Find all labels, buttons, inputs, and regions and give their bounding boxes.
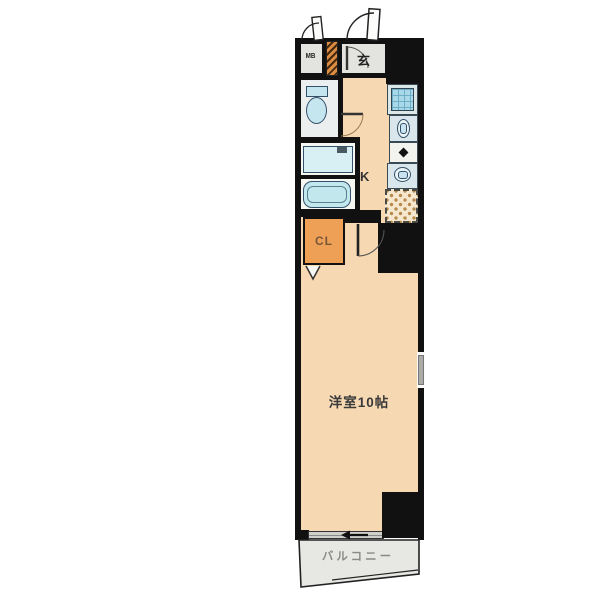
wall-block-bottom-right <box>382 492 424 538</box>
main-room-label: 洋室10帖 <box>299 391 419 411</box>
entrance-label: 玄 <box>357 50 370 69</box>
meter-box-label: MB <box>300 53 321 60</box>
bathtub-inner-line <box>307 186 347 204</box>
wall-left <box>295 38 301 540</box>
closet: CL <box>303 217 345 265</box>
sink-bowl-icon <box>397 119 410 138</box>
pipe-space-hatch <box>326 41 338 76</box>
balcony-rail-line <box>332 570 418 580</box>
kitchen-tile-pad <box>385 189 418 223</box>
floor-plan: CL <box>0 0 600 600</box>
wall-door-header <box>343 210 381 223</box>
faucet-icon <box>337 147 347 153</box>
sink-bowl-2-icon <box>394 167 411 182</box>
toilet-icon <box>306 86 328 97</box>
entrance-door-leaf <box>367 9 380 41</box>
wall-bottom-left <box>295 530 309 540</box>
sink-bowl-inner <box>400 123 407 134</box>
kitchen-sink-icon <box>391 88 414 111</box>
closet-label: CL <box>315 234 333 248</box>
meter-box-door-leaf <box>312 17 323 41</box>
bathtub-icon <box>303 181 351 208</box>
small-window-icon <box>418 355 424 385</box>
sliding-window-rail <box>309 535 383 536</box>
toilet-bowl-icon <box>306 97 327 124</box>
kitchen-label: K <box>360 169 369 184</box>
entrance-door-arc <box>347 13 374 40</box>
balcony-label: バルコニー <box>303 548 413 564</box>
sink-bowl-2-inner <box>398 171 408 179</box>
wall-toilet-right <box>338 76 343 143</box>
wall-right <box>418 38 424 540</box>
